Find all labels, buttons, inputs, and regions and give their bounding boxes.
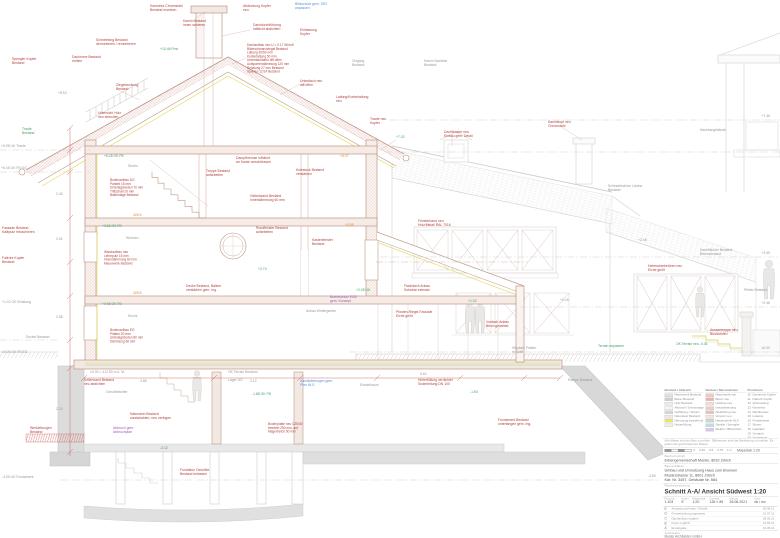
revision-row: AErstabgabe31.05.21 xyxy=(665,526,777,531)
annotation-text: Anbau Wintergarten xyxy=(306,309,336,313)
annotation-text: +1.02 xyxy=(468,299,477,303)
legend-item: Sanitär / Spengler xyxy=(706,423,746,427)
annotation-text: Dachaufbau neu U = 0.17 W/m²KBiberschwan… xyxy=(247,43,295,74)
revision-row: BKoten ergänzt14.06.21 xyxy=(665,521,777,526)
annotation-text: Hebeschiebetüren neuEiche geölt xyxy=(648,264,682,272)
legend-swatch xyxy=(665,393,674,397)
annotation-text: OK Terrain Bestand xyxy=(228,370,258,374)
scale-tick-label: 0.75 xyxy=(717,449,723,452)
annotation-text: Wandaufbau neuLehmputz 15 mmInnendämmung… xyxy=(104,250,137,265)
annotation-text: +10.46 First xyxy=(160,47,178,51)
annotation-text: +2.08 UK xyxy=(356,288,371,292)
annotation-text: ZiegeldeckungBestand xyxy=(116,83,138,91)
annotation-text: -3.60 xyxy=(648,474,656,478)
legend-swatch xyxy=(665,419,674,423)
legend-item: Mauerwerk Bestand xyxy=(665,393,704,397)
annotation-text: -4.05 UK Fundament xyxy=(2,475,34,479)
annotation-text: +7.02 xyxy=(396,135,405,139)
legend-item: Abbruch / Demontage xyxy=(665,406,704,410)
annotation-text: Kaminkopf neuChromstahl xyxy=(548,120,571,128)
neighbour-building xyxy=(718,33,780,192)
plan-field-format: Format126 × 89 xyxy=(710,498,730,505)
annotation-text: Fundament Bestandunterfangen gem. Ing. xyxy=(498,418,531,426)
general-note: Alle Masse sind am Bau zu prüfen. Differ… xyxy=(665,440,777,447)
basement-floor-slab xyxy=(84,444,504,452)
project-line: Kat. Nr. 3457, Gebäude Nr. 584 xyxy=(665,477,777,482)
annotation-text: Lattung/Konterlattungneu xyxy=(336,95,369,103)
annotation-text: Wohnen xyxy=(126,236,139,240)
annotation-text: 2.45 xyxy=(56,192,63,196)
plan-title: Schnitt A-A/ Ansicht Südwest 1:20 xyxy=(665,488,777,495)
annotation-text: Blitzschutz gem. SEVanpassen xyxy=(295,2,328,10)
legend-item: Auffüllung / Terrain xyxy=(665,410,704,414)
annotation-text: TraufeBestand xyxy=(22,127,35,135)
legend-item: Naturstein Bestand xyxy=(665,414,704,418)
scale-caption: Massstab 1:20 xyxy=(737,449,760,453)
annotation-text: Unterdach neudiff.offen xyxy=(300,79,322,87)
legend-header: Neubau / Massnahmen xyxy=(706,389,746,393)
annotation-text: 2.58 xyxy=(56,315,63,319)
annotation-text: Traufe neuKupfer xyxy=(370,117,386,125)
annotation-text: Rampe Bestand xyxy=(568,378,592,382)
annotation-text: 4.86 xyxy=(140,379,147,383)
interior-stairs xyxy=(152,172,206,218)
scale-tick-label: 1 m xyxy=(727,449,732,452)
legend-col-neubau: Neubau / Massnahmen Mauerwerk neuBeton n… xyxy=(706,389,746,438)
legend-swatch xyxy=(665,423,674,427)
annotation-text: Fassade BestandKalkputz retuschieren xyxy=(2,226,35,234)
annotation-text: Giebelwand BestandInnendämmung 60 mm xyxy=(250,194,285,202)
legend-swatch xyxy=(665,402,674,406)
annotation-text: 2.62 xyxy=(56,237,63,241)
annotation-text: Dampfbremse luftdichtan Kamin anschliess… xyxy=(236,156,271,164)
annotation-text: Fundation GewölbeBestand belassen xyxy=(180,468,210,476)
annotation-text: +6.07 xyxy=(340,154,349,158)
legend-item: 20Sockelputz xyxy=(748,436,779,438)
legend-swatch xyxy=(706,393,715,397)
annotation-text: Vordach AnbauBlech gekantet xyxy=(486,320,509,328)
annotation-text: +6.45 OK FB xyxy=(104,154,124,158)
annotation-text: KastenfensterBestand xyxy=(312,238,334,246)
annotation-text: Einstellraum xyxy=(360,383,379,387)
annotation-text: ±0.00 xyxy=(762,346,771,350)
annotation-text: OK Terrain neu -0.35 xyxy=(676,342,708,346)
plan-field-index: IndexE xyxy=(682,498,693,505)
plan-title-block: Planbezeichnung Schnitt A-A/ Ansicht Süd… xyxy=(663,483,778,496)
annotation-text: -3.12 xyxy=(160,446,168,450)
annotation-text: ±0.00 = 412.50 m ü. M. xyxy=(90,370,125,374)
window-opening xyxy=(84,306,97,340)
legend-swatch xyxy=(665,398,674,402)
legend-swatch xyxy=(706,415,715,419)
round-window xyxy=(220,233,246,259)
annotation-text: +0.45 xyxy=(560,298,569,302)
annex-doors xyxy=(634,274,738,332)
legend-swatch xyxy=(706,398,715,402)
annotation-text: Aussentreppe neuBlockstufen xyxy=(710,328,738,336)
annotation-text: +6.45 OK FB DG xyxy=(1,166,27,170)
window-opening xyxy=(365,240,378,280)
architect-block: Architektur Muster Architekten GmbHBahnh… xyxy=(663,531,778,538)
annotation-text: Abdeckung Kupferneu xyxy=(243,4,272,12)
legend-item: Hinterfüllung xyxy=(665,423,704,427)
annotation-text: +2.46 xyxy=(638,238,647,242)
basement-wall-left xyxy=(58,366,84,458)
annotation-text: Küche xyxy=(128,314,138,318)
legend-header: Positionen xyxy=(748,389,779,393)
annotation-text: +3.82 OK FB xyxy=(102,224,122,228)
legend-swatch xyxy=(665,415,674,419)
annotation-text: Rundfenster Bestandaufarbeiten xyxy=(256,226,288,234)
roof-shingles-lower xyxy=(606,208,756,282)
plan-field-datum: Datum26.08.2021 xyxy=(730,498,755,505)
annotation-text: +6.98 UK Traufe xyxy=(1,144,26,148)
annotation-text: Kellerwand Bestandneu abdichten xyxy=(84,378,114,386)
annotation-text: Kamin Bestandinnen sanieren xyxy=(183,19,206,27)
annotation-text: +3.55 xyxy=(345,223,354,227)
annotation-text: Naturstein Bestandsandstrahlen, neu verf… xyxy=(130,412,171,420)
legend-swatch xyxy=(706,402,715,406)
client-block: Bauherrschaft Erbengemeinschaft Muster, … xyxy=(663,453,778,463)
annotation-text: Pfeiler Bestand xyxy=(744,288,767,292)
plan-fields: Plan Nr.1.103IndexEMassstab1:20Format126… xyxy=(663,496,778,506)
foundation-right xyxy=(303,452,585,464)
legend-swatch xyxy=(706,411,715,415)
revision-row: EAnpassung Anbau / Details26.08.21 xyxy=(665,507,777,512)
annotation-text: 426.5 xyxy=(133,213,142,217)
annotation-text: +1.02 OK Brüstung xyxy=(2,300,31,304)
annotation-text: Bodenaufbau DGParkett 15 mmUnterlagsbode… xyxy=(110,178,143,197)
legend-swatch xyxy=(665,411,674,415)
annotation-text: Fensterband neuHolz/Metall RAL 7016 xyxy=(418,219,451,227)
scale-tick-label: 0.25 xyxy=(699,449,705,452)
annotation-text: OrtgangBestand xyxy=(352,59,365,67)
window-band-upper xyxy=(412,227,558,278)
vault-foundation xyxy=(84,504,303,522)
annotation-text: Gewölbekeller xyxy=(106,390,128,394)
annotation-text: Schindelschirm LärcheBestand xyxy=(608,184,642,192)
roof-left-slope xyxy=(19,57,228,186)
legend-swatch xyxy=(706,406,715,410)
legend-item: 10Dachrinne Kupfer xyxy=(748,393,779,397)
gate-post xyxy=(742,316,751,356)
legend-item: Elektro / Blitzschutz xyxy=(706,427,746,431)
annotation-text: Dachdurchführungluftdicht abdichten xyxy=(253,23,281,31)
annotation-text: Flachdach AnbauSubstrat extensiv xyxy=(404,284,430,292)
annotation-text: ±0.00 OK FB EG xyxy=(2,350,28,354)
drawing-sheet: Kaminhut ChromstahlBestand ersetzenAbdec… xyxy=(0,0,780,538)
annotation-text: +3.55 xyxy=(761,251,770,255)
annotation-text: Kaminhut ChromstahlBestand ersetzen xyxy=(150,4,183,12)
scale-tick-label: 0 xyxy=(694,449,696,452)
annotation-text: Abbruch gem.Abbruchplan xyxy=(113,426,134,434)
legend-col-bestand: Bestand / Abbruch Mauerwerk BestandBeton… xyxy=(665,389,704,438)
annotation-text: Schneefang Bestanddemontieren / remontie… xyxy=(96,38,136,46)
annotation-text: Studio xyxy=(128,164,138,168)
legend-swatch xyxy=(706,428,715,432)
legend-swatch xyxy=(706,423,715,427)
annotation-text: Nachbargebäude xyxy=(700,128,726,132)
plan-field-gez: Gez.bk / mv xyxy=(755,498,775,505)
annotation-text: Bodenaufbau EGPlatten 20 mmUnterlagsbode… xyxy=(110,328,143,343)
elevation-chimney xyxy=(573,138,595,184)
window-opening xyxy=(84,232,97,262)
material-legend: Bestand / Abbruch Mauerwerk BestandBeton… xyxy=(663,388,778,438)
annotation-text: Sockel Bestand xyxy=(26,335,50,339)
annotation-text: Fallrohr KupferBestand xyxy=(2,256,25,264)
annotation-text: -1.54 xyxy=(470,390,478,394)
annotation-text: +7.46 xyxy=(761,114,770,118)
annotation-text: Kniestock Bestandverstärken xyxy=(296,168,324,176)
annotation-text: Decke Bestand, Balkenverstärken gem. Ing… xyxy=(186,284,221,292)
annotation-text: +8.53 xyxy=(58,91,67,95)
annotation-text: EinfassungKupfer xyxy=(300,28,317,36)
annotation-text: Kamin NachbarBestand xyxy=(424,59,448,67)
plan-field-plannr: Plan Nr.1.103 xyxy=(665,498,682,505)
project-block: Bauvorhaben Umbau und Umnutzung Haus zum… xyxy=(663,464,778,484)
revision-row: DFensterteilung angepasst12.07.21 xyxy=(665,511,777,516)
annotation-text: +2.74 xyxy=(258,267,267,271)
plan-field-massstab: Massstab1:20 xyxy=(693,498,710,505)
basement-structure xyxy=(50,366,668,522)
annotation-text: Hinterfüllung verdichtetSickerleitung DN… xyxy=(418,378,453,386)
annotation-text: Sanitärleitungen gem.Plan HLS xyxy=(300,379,333,387)
annotation-text: Untersicht Holzneu streichen xyxy=(98,111,121,119)
legend-header: Bestand / Abbruch xyxy=(665,389,704,393)
annotation-text: 2.24 xyxy=(56,407,63,411)
revision-table: EAnpassung Anbau / Details26.08.21DFenst… xyxy=(663,506,778,530)
annotation-text: +0.96 OK FB xyxy=(102,302,122,306)
annotation-text: 5.62 xyxy=(420,372,427,376)
basement-stairs xyxy=(160,372,195,402)
gutter-right xyxy=(403,155,409,161)
revision-row: CDachaufbau ergänzt28.06.21 xyxy=(665,516,777,521)
legend-swatch xyxy=(665,406,674,410)
utility-trench xyxy=(26,434,84,442)
legend-swatch xyxy=(706,419,715,423)
client-name: Erbengemeinschaft Muster, 8032 Zürich xyxy=(665,458,777,463)
annotation-text: 425.8 xyxy=(133,291,142,295)
title-block: Bestand / Abbruch Mauerwerk BestandBeton… xyxy=(663,388,778,537)
annotation-text: Spengler KupferBestand xyxy=(12,57,37,65)
annotation-text: Pfosten-Riegel-FassadeEiche geölt xyxy=(396,310,432,318)
scale-tick-label: 0.5 xyxy=(709,449,713,452)
annotation-text: 3.12 xyxy=(250,379,257,383)
annotation-text: Lager UG xyxy=(228,378,243,382)
annotation-text: Dachrinne Bestandrichten xyxy=(72,55,101,63)
legend-item: Dämmung bestehend xyxy=(665,419,704,423)
annotation-text: Dachfenster neuEinbau gem. Detail xyxy=(444,130,473,138)
legend-col-positionen: Positionen 10Dachrinne Kupfer11Fallrohr … xyxy=(748,389,779,438)
annotation-text: Treppe Bestandaufarbeiten xyxy=(206,169,230,177)
annotation-text: WerkleitungenBestand xyxy=(30,426,52,434)
annotation-text: +2.46 xyxy=(761,301,770,305)
annotation-text: Terrain anpassen xyxy=(598,344,624,348)
annotation-text: -1.88 OK FB xyxy=(252,392,272,396)
